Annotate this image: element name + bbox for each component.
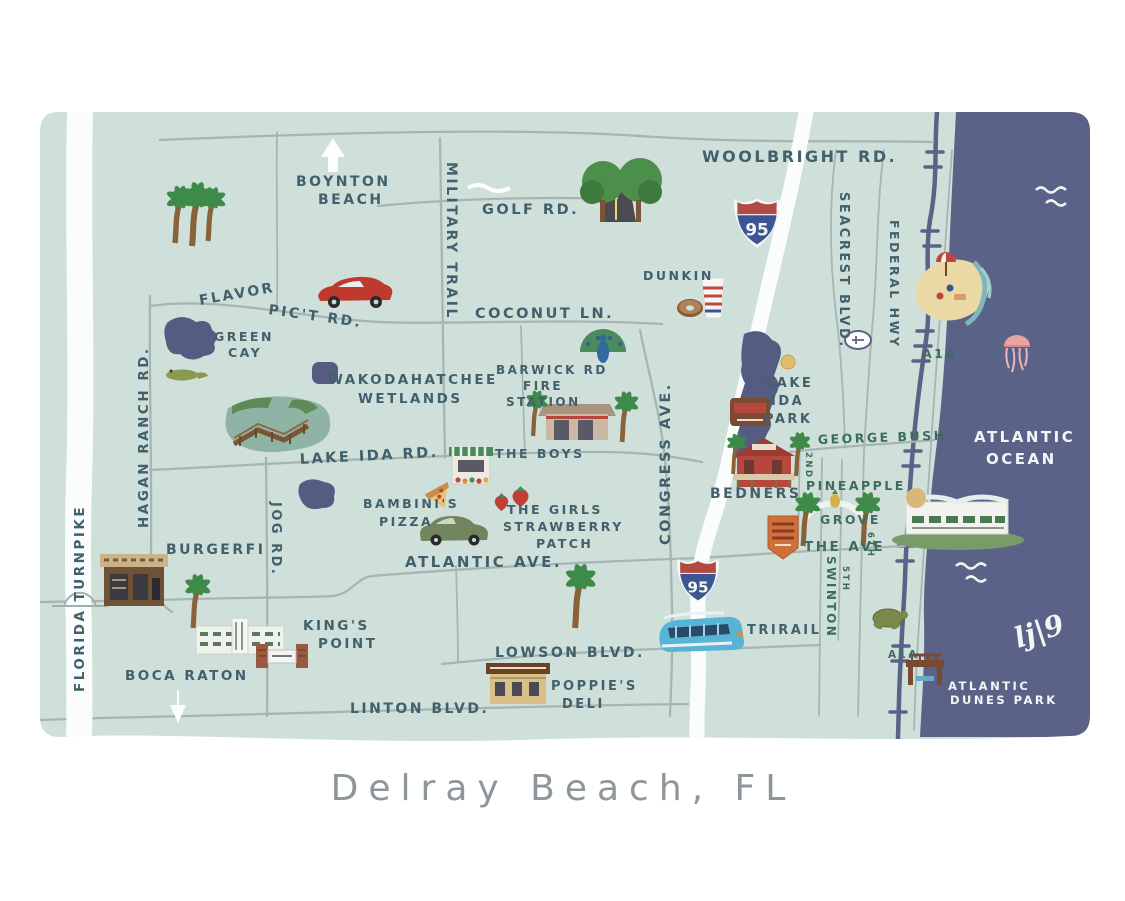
wetlands-boardwalk-icon [226,396,331,452]
label-grove: GROVE [820,512,881,527]
label-strawberry-3: PATCH [536,536,593,551]
page: 95 95 WOOLBRIGHT RD. MILITARY TRAIL GOLF… [0,0,1125,901]
label-federal: FEDERAL HWY [887,220,902,348]
label-dunes-2: DUNES PARK [950,693,1058,707]
label-swinton: SWINTON [824,556,838,638]
dunkin-cup-icon [702,278,724,318]
label-burgerfi: BURGERFI [166,542,265,558]
label-pineapple: PINEAPPLE [806,478,906,493]
label-trirail: TRIRAIL [747,623,821,638]
label-turnpike: FLORIDA TURNPIKE [72,505,88,692]
label-poppies-1: POPPIE'S [551,679,638,694]
label-golf-rd: GOLF RD. [482,202,579,218]
label-poppies-2: DELI [562,697,605,712]
label-a1a-south: A1A [888,649,919,661]
label-ocean-1: ATLANTIC [974,428,1075,446]
label-congress: CONGRESS AVE. [658,382,674,545]
label-lake-ida-park-3: PARK [764,412,812,427]
label-6th-ave: 6TH [865,532,875,558]
label-seacrest: SEACREST BLVD. [836,192,851,349]
donut-icon [677,299,703,317]
label-lake-ida-park-2: IDA [771,394,804,409]
label-atlantic-ave: ATLANTIC AVE. [405,553,562,571]
label-wako-2: WETLANDS [358,391,463,407]
label-green-cay-1: GREEN [214,329,274,344]
i95-number: 95 [745,219,768,239]
i95-number: 95 [687,578,708,596]
label-strawberry-2: STRAWBERRY [503,519,624,534]
map-illustration: 95 95 WOOLBRIGHT RD. MILITARY TRAIL GOLF… [0,0,1125,901]
label-2nd-ave: 2ND [803,452,813,480]
map-title: Delray Beach, FL [331,768,796,809]
label-5th-ave: 5TH [840,566,850,592]
label-woolbright: WOOLBRIGHT RD. [702,147,897,166]
label-coconut: COCONUT LN. [475,306,614,322]
poppies-deli-icon [486,663,550,704]
label-military-trail: MILITARY TRAIL [443,162,459,320]
label-wako-1: WAKODAHATCHEE [328,372,498,388]
label-lake-ida-park-1: LAKE [766,376,813,391]
label-dunkin: DUNKIN [643,268,714,283]
label-barwick-1: BARWICK RD [496,363,608,377]
label-hagan-ranch: HAGAN RANCH RD. [136,346,152,528]
label-strawberry-1: THE GIRLS [507,502,603,517]
farm-stand-icon [449,447,493,484]
label-linton: LINTON BLVD. [350,701,489,717]
label-kings-1: KING'S [303,618,370,634]
label-lowson: LOWSON BLVD. [495,645,645,661]
label-bambinis-2: PIZZA [379,514,433,529]
label-green-cay-2: CAY [228,345,262,360]
label-boca: BOCA RATON [125,668,249,684]
label-jog-rd: JOG RD. [268,501,283,576]
label-the-boys: THE BOYS [495,446,585,461]
label-bedners: BEDNERS [710,486,802,502]
label-barwick-2: FIRE [523,379,563,393]
label-kings-2: POINT [318,636,377,652]
label-boynton-2: BEACH [318,192,384,208]
burgerfi-building-icon [100,554,168,606]
label-barwick-3: STATION [506,395,581,409]
label-boynton-1: BOYNTON [296,174,391,190]
label-dunes-1: ATLANTIC [948,679,1030,693]
label-a1a-north: A1A [922,346,958,361]
label-ocean-2: OCEAN [986,450,1057,468]
label-bambinis-1: BAMBINI'S [363,496,459,511]
sun-icon [781,355,795,369]
